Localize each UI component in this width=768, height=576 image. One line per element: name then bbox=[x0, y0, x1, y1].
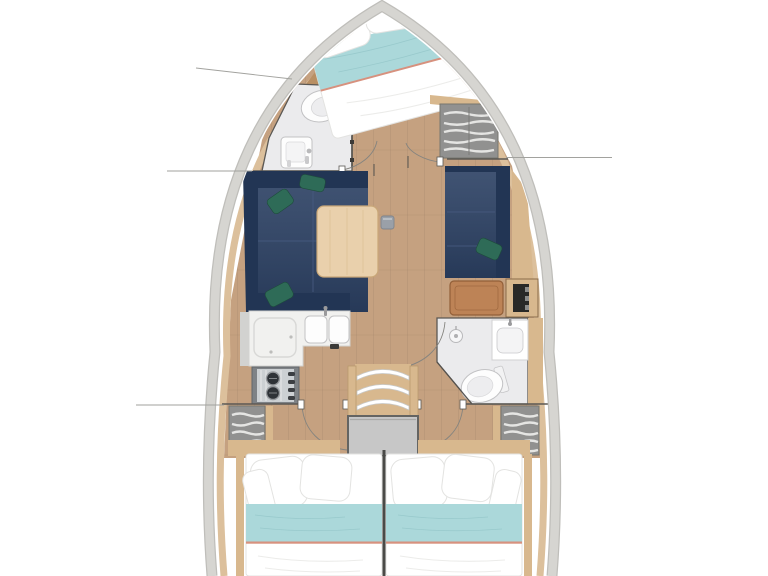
berth-side-trim bbox=[524, 454, 532, 576]
table-support bbox=[381, 216, 394, 229]
aft-head-trim bbox=[528, 318, 543, 404]
berth-blanket bbox=[386, 504, 522, 543]
forward-washbasin bbox=[281, 137, 312, 168]
pillow bbox=[299, 454, 353, 502]
pillow bbox=[390, 456, 448, 511]
berth-blanket bbox=[246, 504, 382, 543]
floor-plan-canvas bbox=[0, 0, 768, 576]
door-jamb bbox=[460, 400, 466, 409]
blanket-stripe bbox=[386, 542, 522, 544]
step-rail bbox=[348, 366, 356, 416]
companionway bbox=[348, 364, 418, 456]
soap-dispenser bbox=[330, 344, 339, 349]
door-jamb bbox=[437, 157, 443, 166]
galley-stove bbox=[252, 367, 299, 404]
door-hinge bbox=[350, 158, 354, 162]
aft-washbasin bbox=[492, 318, 528, 360]
door-jamb bbox=[298, 400, 304, 409]
door-hinge bbox=[350, 140, 354, 144]
step-rail bbox=[410, 366, 418, 416]
settee-backrest bbox=[496, 166, 510, 278]
aft-cabin-starboard bbox=[386, 440, 532, 576]
blanket-stripe bbox=[246, 542, 382, 544]
nav-area bbox=[450, 279, 538, 317]
pillow bbox=[441, 453, 496, 503]
faucet bbox=[324, 306, 328, 310]
aft-cabin-divider-wall bbox=[383, 450, 386, 576]
galley-side-shadow bbox=[240, 312, 249, 366]
berth-side-trim bbox=[236, 454, 244, 576]
aft-cabin-port bbox=[228, 440, 382, 576]
